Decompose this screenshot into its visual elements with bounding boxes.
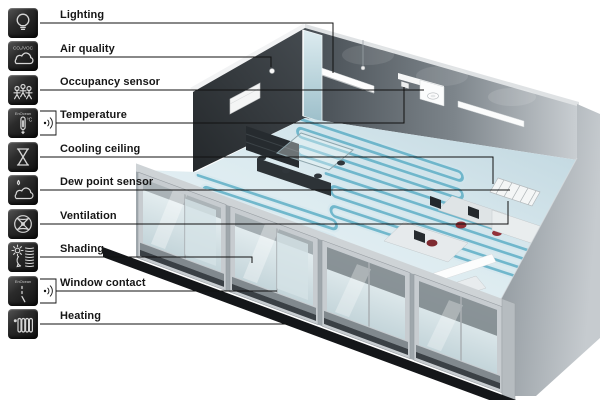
tile-air-quality: CO₂/VOC <box>8 41 38 71</box>
sun-blinds-icon <box>8 242 38 272</box>
pendant-sensor <box>361 66 365 70</box>
tile-cooling-ceiling <box>8 142 38 172</box>
air-quality-cloud-icon: CO₂/VOC <box>8 41 38 71</box>
wall-air-quality-sensor <box>269 68 274 73</box>
label-heating: Heating <box>60 309 101 323</box>
corner-glass-pillar <box>303 30 322 122</box>
tile-shading <box>8 242 38 272</box>
label-window-contact: Window contact <box>60 276 146 290</box>
tile-heating <box>8 309 38 339</box>
fan-icon <box>8 209 38 239</box>
label-dew-point: Dew point sensor <box>60 175 153 189</box>
red-chair <box>456 222 467 229</box>
wireless-bracket <box>40 111 56 135</box>
window-contact-icon: EnOcean <box>8 276 38 306</box>
hourglass-icon <box>8 142 38 172</box>
tile-window-contact: EnOcean <box>8 276 38 306</box>
occupancy-ceiling-sensor <box>428 93 439 99</box>
dew-cloud-icon <box>8 175 38 205</box>
label-air-quality: Air quality <box>60 42 115 56</box>
label-temperature: Temperature <box>60 108 127 122</box>
thermometer-icon: EnOcean °C <box>8 108 38 138</box>
room-cutaway-3d <box>0 0 600 400</box>
svg-text:EnOcean: EnOcean <box>15 111 31 116</box>
tile-dew-point <box>8 175 38 205</box>
label-cooling-ceiling: Cooling ceiling <box>60 142 140 156</box>
tile-temperature: EnOcean °C <box>8 108 38 138</box>
tile-lighting <box>8 8 38 38</box>
label-occupancy: Occupancy sensor <box>60 75 160 89</box>
red-chair <box>427 240 438 247</box>
svg-text:CO₂/VOC: CO₂/VOC <box>13 46 34 51</box>
wireless-bracket <box>40 279 56 303</box>
corner-post <box>502 299 515 400</box>
radiator-icon <box>8 309 38 339</box>
label-shading: Shading <box>60 242 104 256</box>
svg-text:°C: °C <box>27 118 33 124</box>
wireless-wave-icon <box>44 118 53 297</box>
tile-ventilation <box>8 209 38 239</box>
occupancy-people-icon <box>8 75 38 105</box>
figure-room-automation: Lighting CO₂/VOC Air quality Occupancy s… <box>0 0 600 400</box>
lightbulb-icon <box>8 8 38 38</box>
label-ventilation: Ventilation <box>60 209 117 223</box>
label-lighting: Lighting <box>60 8 104 22</box>
svg-text:EnOcean: EnOcean <box>15 279 31 284</box>
tile-occupancy <box>8 75 38 105</box>
